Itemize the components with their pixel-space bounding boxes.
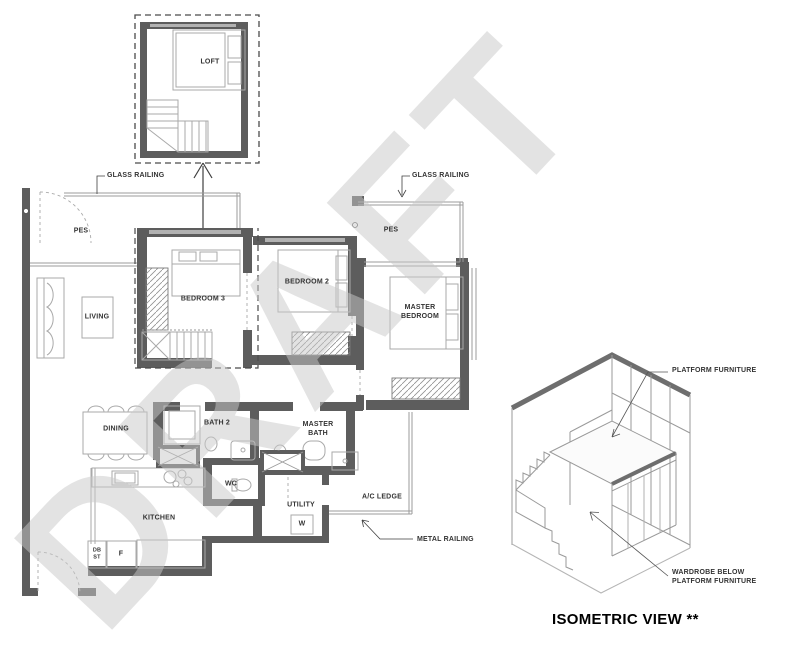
room-label-kitchen: KITCHEN xyxy=(143,514,176,523)
wardrobe-below-line1: WARDROBE BELOW xyxy=(672,568,756,577)
master-bath-line2: BATH xyxy=(303,429,334,438)
isometric-drawing xyxy=(512,355,690,593)
room-label-master-bath: MASTER BATH xyxy=(303,420,334,438)
room-label-wc: WC xyxy=(225,480,237,489)
room-label-utility: UTILITY xyxy=(287,501,315,510)
fixture-label-fridge: F xyxy=(119,550,123,559)
room-label-dining: DINING xyxy=(103,425,129,434)
fixture-label-washer: W xyxy=(299,520,306,529)
room-label-living: LIVING xyxy=(85,313,110,322)
room-label-pes-left: PES xyxy=(74,227,89,236)
room-label-bedroom3: BEDROOM 3 xyxy=(181,295,225,304)
callout-platform-furniture: PLATFORM FURNITURE xyxy=(672,366,756,375)
floor-plan-page: DRAFT LOFT PES PES LIVING BEDROOM 3 BEDR… xyxy=(0,0,792,646)
master-bedroom-line2: BEDROOM xyxy=(401,312,439,321)
room-label-ac-ledge: A/C LEDGE xyxy=(362,493,402,502)
room-label-loft: LOFT xyxy=(200,58,219,67)
db-line2: ST xyxy=(93,554,101,561)
callout-glass-railing-right: GLASS RAILING xyxy=(412,171,469,180)
room-label-bath2: BATH 2 xyxy=(204,419,230,428)
room-label-master-bedroom: MASTER BEDROOM xyxy=(401,303,439,321)
fixture-label-db-st: DB ST xyxy=(93,548,101,561)
callout-glass-railing-left: GLASS RAILING xyxy=(107,171,164,180)
wardrobe-below-line2: PLATFORM FURNITURE xyxy=(672,577,756,586)
room-label-bedroom2: BEDROOM 2 xyxy=(285,278,329,287)
callout-wardrobe-below: WARDROBE BELOW PLATFORM FURNITURE xyxy=(672,568,756,586)
isometric-view-title: ISOMETRIC VIEW ** xyxy=(552,611,699,628)
loft-inset xyxy=(135,15,259,163)
room-label-pes-right: PES xyxy=(384,226,399,235)
callout-metal-railing: METAL RAILING xyxy=(417,535,474,544)
master-bath-line1: MASTER xyxy=(303,420,334,429)
master-bedroom-line1: MASTER xyxy=(401,303,439,312)
db-line1: DB xyxy=(93,548,101,555)
